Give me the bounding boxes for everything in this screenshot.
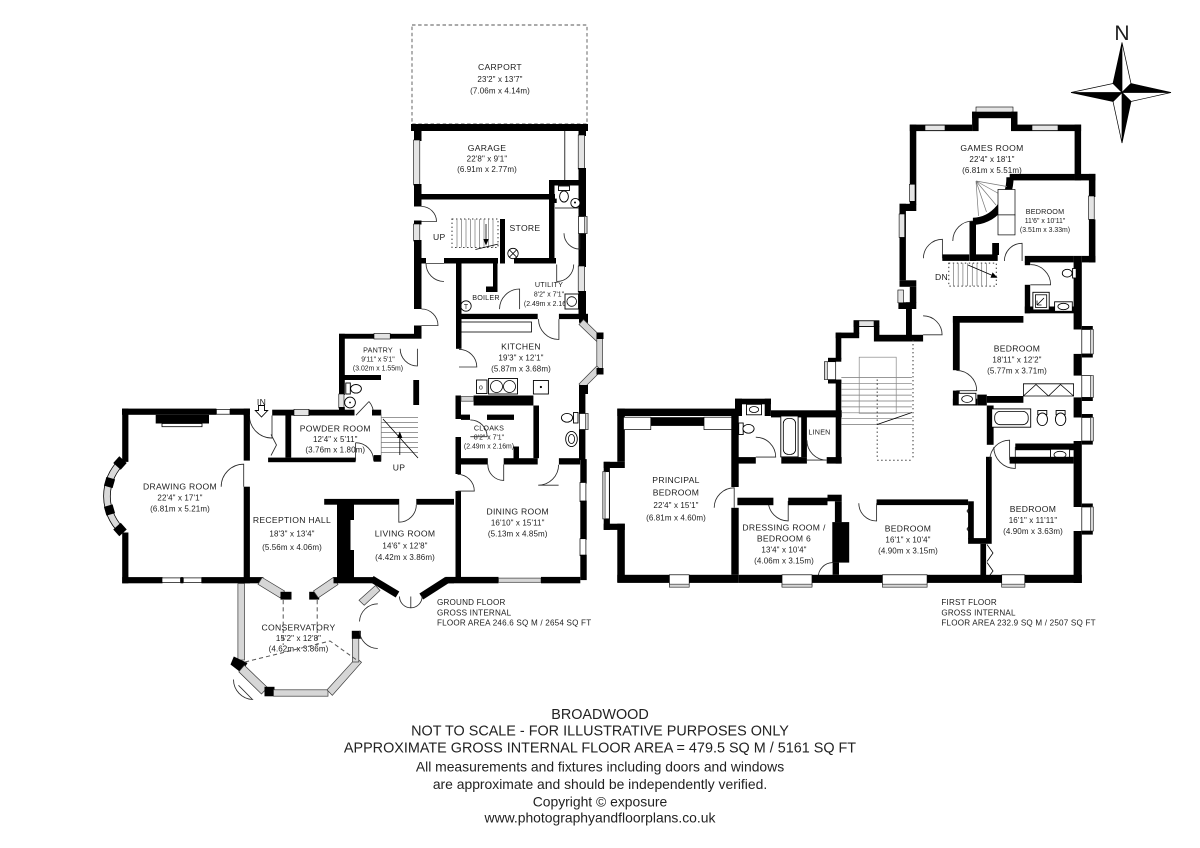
svg-text:STORE: STORE — [510, 223, 541, 233]
svg-text:BROADWOOD: BROADWOOD — [551, 707, 649, 723]
svg-text:RECEPTION HALL: RECEPTION HALL — [253, 515, 331, 525]
svg-text:16'1" x 11'11": 16'1" x 11'11" — [1009, 516, 1058, 525]
svg-text:(4.42m x 3.86m): (4.42m x 3.86m) — [375, 553, 435, 562]
svg-text:BOILER: BOILER — [472, 293, 500, 302]
svg-text:22'4" x 18'1": 22'4" x 18'1" — [969, 155, 1014, 164]
svg-text:(6.81m x 4.60m): (6.81m x 4.60m) — [646, 514, 706, 523]
svg-text:APPROXIMATE GROSS INTERNAL FLO: APPROXIMATE GROSS INTERNAL FLOOR AREA = … — [344, 741, 856, 757]
svg-text:BEDROOM 6: BEDROOM 6 — [757, 534, 811, 544]
svg-text:BEDROOM: BEDROOM — [1026, 207, 1065, 216]
svg-text:UP: UP — [393, 463, 406, 473]
svg-text:(2.49m x 2.16m): (2.49m x 2.16m) — [464, 444, 514, 451]
svg-text:BEDROOM: BEDROOM — [994, 344, 1041, 354]
svg-text:T: T — [464, 304, 469, 311]
svg-text:(5.77m x 3.71m): (5.77m x 3.71m) — [987, 367, 1047, 376]
svg-text:(4.06m x 3.15m): (4.06m x 3.15m) — [754, 557, 814, 566]
svg-text:(4.90m x 3.63m): (4.90m x 3.63m) — [1003, 527, 1063, 536]
svg-text:KITCHEN: KITCHEN — [501, 342, 541, 352]
svg-text:DRESSING ROOM /: DRESSING ROOM / — [742, 523, 826, 533]
svg-text:are approximate and should be: are approximate and should be independen… — [433, 776, 767, 792]
svg-text:CLOAKS: CLOAKS — [474, 424, 504, 433]
svg-text:(3.51m x 3.33m): (3.51m x 3.33m) — [1020, 227, 1070, 234]
svg-text:(5.13m x 4.85m): (5.13m x 4.85m) — [488, 530, 548, 539]
svg-text:18'3" x 13'4": 18'3" x 13'4" — [269, 530, 314, 539]
svg-text:www.photographyandfloorplans.c: www.photographyandfloorplans.co.uk — [484, 810, 716, 826]
svg-text:9'11" x 5'1": 9'11" x 5'1" — [361, 357, 395, 364]
svg-text:13'4" x 10'4": 13'4" x 10'4" — [761, 546, 806, 555]
svg-text:NOT TO SCALE - FOR ILLUSTRATIV: NOT TO SCALE - FOR ILLUSTRATIVE PURPOSES… — [411, 724, 789, 740]
svg-text:GROSS INTERNAL: GROSS INTERNAL — [941, 608, 1016, 617]
svg-text:POWDER ROOM: POWDER ROOM — [300, 424, 371, 434]
svg-text:(6.81m x 5.51m): (6.81m x 5.51m) — [962, 166, 1022, 175]
svg-text:16'1" x 10'4": 16'1" x 10'4" — [885, 536, 930, 545]
svg-text:GROSS INTERNAL: GROSS INTERNAL — [437, 608, 512, 617]
svg-text:PANTRY: PANTRY — [363, 346, 393, 355]
svg-text:BEDROOM: BEDROOM — [1010, 504, 1057, 514]
svg-text:DN: DN — [935, 272, 948, 282]
svg-text:14'6" x 12'8": 14'6" x 12'8" — [382, 542, 427, 551]
svg-text:PRINCIPAL: PRINCIPAL — [652, 475, 699, 485]
svg-text:15'2" x 12'8": 15'2" x 12'8" — [276, 634, 321, 643]
svg-text:12'4" x 5'11": 12'4" x 5'11" — [313, 435, 358, 444]
svg-text:18'11" x 12'2": 18'11" x 12'2" — [992, 356, 1041, 365]
svg-text:11'6" x 10'11": 11'6" x 10'11" — [1025, 218, 1066, 225]
svg-text:(5.87m x 3.68m): (5.87m x 3.68m) — [491, 365, 551, 374]
svg-text:(5.56m x 4.06m): (5.56m x 4.06m) — [262, 543, 322, 552]
svg-text:22'4" x 17'1": 22'4" x 17'1" — [157, 494, 202, 503]
svg-text:FLOOR AREA 246.6 SQ M / 2654 S: FLOOR AREA 246.6 SQ M / 2654 SQ FT — [437, 618, 591, 627]
svg-text:(6.81m x 5.21m): (6.81m x 5.21m) — [150, 505, 210, 514]
svg-text:(6.91m x 2.77m): (6.91m x 2.77m) — [457, 165, 517, 174]
svg-text:DRAWING ROOM: DRAWING ROOM — [143, 482, 217, 492]
svg-text:GROUND FLOOR: GROUND FLOOR — [437, 598, 506, 607]
svg-text:(4.90m x 3.15m): (4.90m x 3.15m) — [878, 547, 938, 556]
svg-text:8'2" x 7'1": 8'2" x 7'1" — [534, 292, 565, 299]
svg-text:BEDROOM: BEDROOM — [885, 524, 932, 534]
svg-text:23'2" x 13'7": 23'2" x 13'7" — [477, 75, 522, 84]
svg-text:CONSERVATORY: CONSERVATORY — [262, 623, 336, 633]
svg-text:(3.76m x 1.80m): (3.76m x 1.80m) — [305, 446, 365, 455]
svg-text:FIRST FLOOR: FIRST FLOOR — [941, 598, 997, 607]
svg-text:UP: UP — [433, 232, 446, 242]
svg-text:LIVING ROOM: LIVING ROOM — [375, 529, 436, 539]
svg-text:16'10" x 15'11": 16'10" x 15'11" — [491, 519, 545, 528]
svg-text:GAMES ROOM: GAMES ROOM — [960, 143, 1023, 153]
svg-text:BEDROOM: BEDROOM — [653, 488, 700, 498]
svg-text:All measurements and fixtures: All measurements and fixtures including … — [416, 759, 784, 775]
svg-text:N: N — [1114, 22, 1129, 45]
svg-text:GARAGE: GARAGE — [468, 143, 507, 153]
svg-text:o: o — [479, 385, 483, 392]
svg-text:FLOOR AREA 232.9 SQ M / 2507 S: FLOOR AREA 232.9 SQ M / 2507 SQ FT — [941, 618, 1095, 627]
svg-text:22'8" x 9'1": 22'8" x 9'1" — [467, 155, 508, 164]
svg-text:LINEN: LINEN — [808, 428, 830, 437]
svg-text:DINING ROOM: DINING ROOM — [486, 507, 549, 517]
svg-text:UTILITY: UTILITY — [535, 280, 563, 289]
svg-text:(4.62m x 3.86m): (4.62m x 3.86m) — [269, 645, 329, 654]
svg-text:19'3" x 12'1": 19'3" x 12'1" — [498, 354, 543, 363]
svg-text:(7.06m x 4.14m): (7.06m x 4.14m) — [470, 87, 530, 96]
svg-text:22'4" x 15'1": 22'4" x 15'1" — [653, 501, 698, 510]
svg-text:(3.02m x 1.55m): (3.02m x 1.55m) — [353, 366, 403, 373]
svg-text:8'2" x 7'1": 8'2" x 7'1" — [474, 435, 505, 442]
svg-text:Copyright © exposure: Copyright © exposure — [533, 794, 668, 810]
svg-text:CARPORT: CARPORT — [478, 62, 522, 72]
